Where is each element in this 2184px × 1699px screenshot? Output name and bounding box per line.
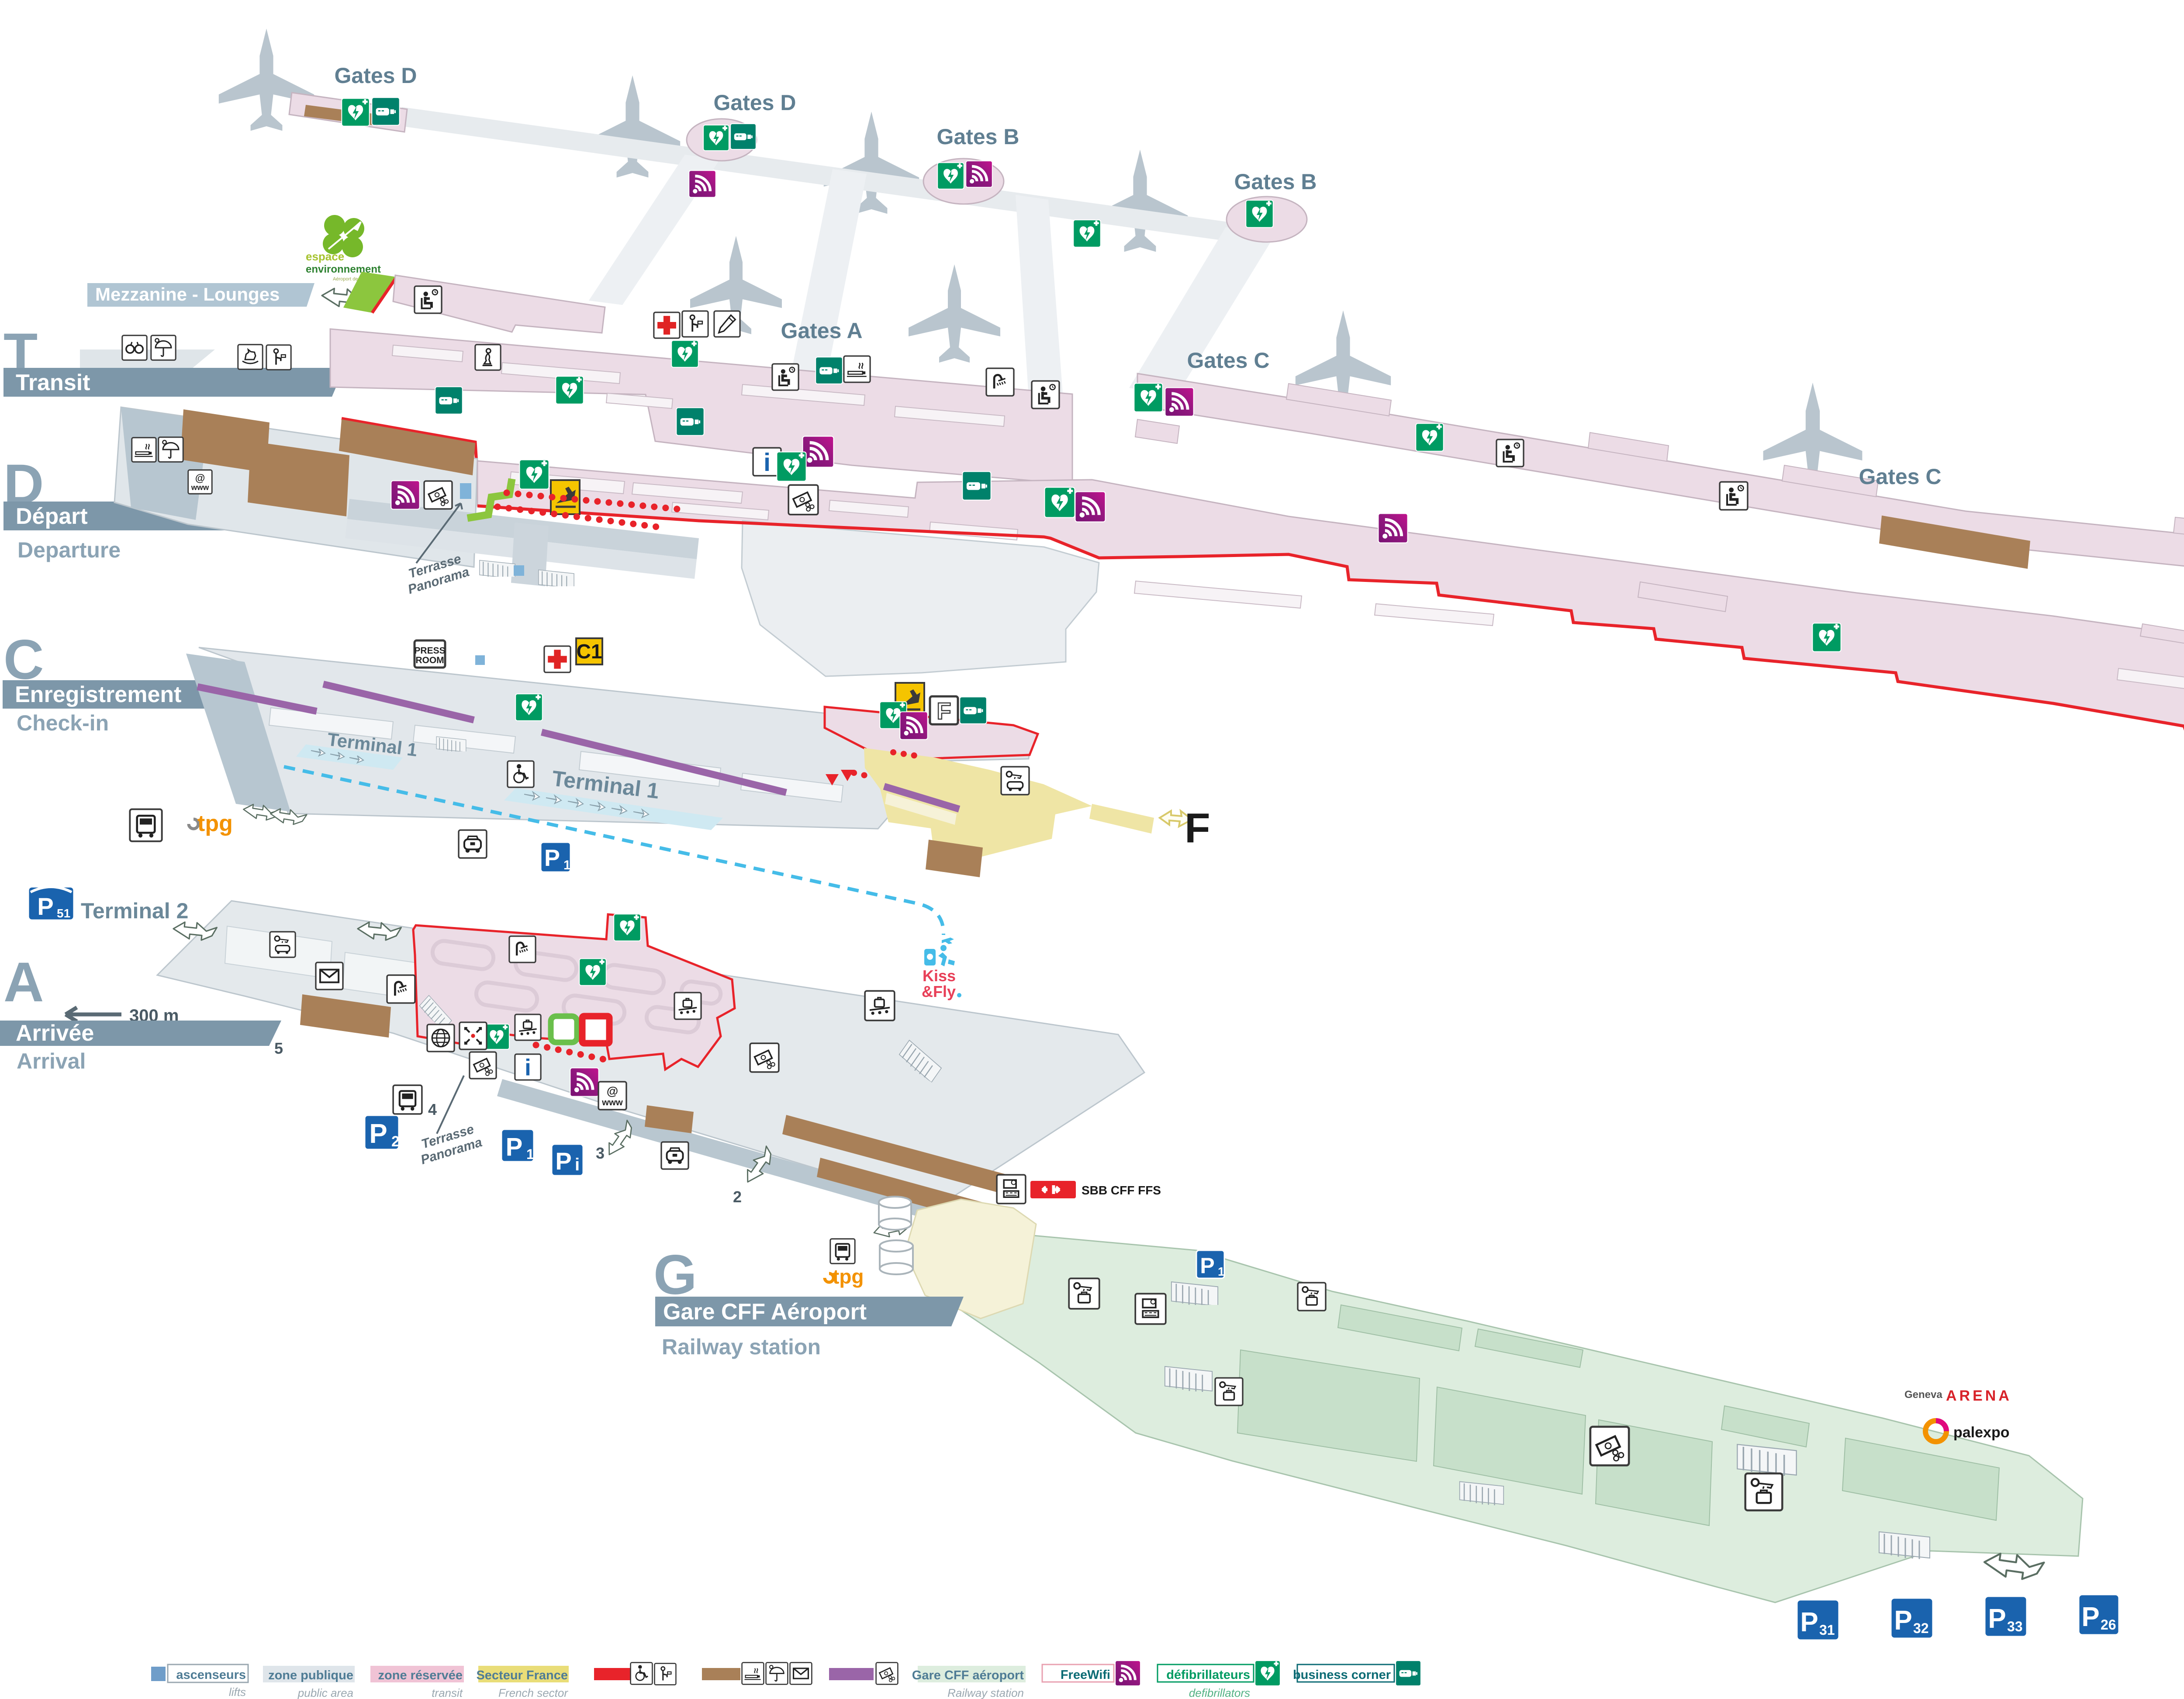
svg-text:&Fly: &Fly <box>922 983 956 1000</box>
svg-text:lifts: lifts <box>229 1685 246 1699</box>
svg-text:C1: C1 <box>577 640 602 663</box>
svg-text:i: i <box>575 1155 580 1174</box>
svg-text:défibrillateurs: défibrillateurs <box>1166 1668 1250 1682</box>
svg-text:Arrivée: Arrivée <box>16 1021 94 1046</box>
svg-text:P: P <box>1800 1607 1818 1637</box>
svg-text:P: P <box>1200 1253 1214 1278</box>
svg-text:Gates D: Gates D <box>714 90 796 115</box>
svg-text:transit: transit <box>432 1686 463 1699</box>
svg-text:P: P <box>555 1147 571 1175</box>
svg-text:French sector: French sector <box>498 1686 568 1699</box>
svg-text:P: P <box>544 845 560 871</box>
svg-text:Gates C: Gates C <box>1187 348 1270 373</box>
svg-text:ARENA: ARENA <box>1946 1388 2012 1404</box>
svg-text:A: A <box>3 951 44 1014</box>
svg-text:33: 33 <box>2007 1619 2023 1634</box>
svg-text:1: 1 <box>526 1146 534 1162</box>
svg-text:2: 2 <box>391 1133 400 1150</box>
svg-text:ascenseurs: ascenseurs <box>176 1668 246 1682</box>
svg-text:3: 3 <box>596 1144 605 1162</box>
svg-text:Terminal 2: Terminal 2 <box>81 899 188 923</box>
svg-text:Transit: Transit <box>16 370 90 395</box>
svg-text:P: P <box>37 893 53 920</box>
svg-text:1: 1 <box>563 858 571 872</box>
svg-text:Gates C: Gates C <box>1859 464 1942 489</box>
svg-text:palexpo: palexpo <box>1953 1424 2009 1441</box>
svg-text:FreeWifi: FreeWifi <box>1061 1668 1110 1682</box>
svg-text:espace: espace <box>306 250 344 263</box>
svg-text:P: P <box>1988 1604 2006 1634</box>
svg-text:PRESS: PRESS <box>414 646 445 656</box>
svg-text:P: P <box>506 1133 523 1161</box>
svg-text:Check-in: Check-in <box>17 711 109 735</box>
svg-text:31: 31 <box>1819 1622 1835 1638</box>
svg-text:1: 1 <box>1218 1265 1225 1278</box>
svg-text:Gates D: Gates D <box>335 63 417 88</box>
svg-text:F: F <box>1185 805 1210 851</box>
svg-text:P: P <box>2081 1602 2099 1632</box>
svg-text:Railway station: Railway station <box>662 1335 821 1359</box>
svg-text:Geneva: Geneva <box>1904 1389 1942 1401</box>
svg-text:P: P <box>1894 1606 1912 1636</box>
svg-text:P: P <box>369 1119 387 1149</box>
svg-text:26: 26 <box>2101 1617 2116 1633</box>
svg-text:Enregistrement: Enregistrement <box>15 682 181 707</box>
svg-text:SBB CFF FFS: SBB CFF FFS <box>1082 1183 1161 1197</box>
svg-text:5: 5 <box>274 1039 283 1057</box>
svg-text:Gare CFF aéroport: Gare CFF aéroport <box>912 1668 1024 1682</box>
svg-text:51: 51 <box>57 907 70 920</box>
svg-text:ROOM: ROOM <box>415 655 444 665</box>
svg-text:zone publique: zone publique <box>268 1668 353 1682</box>
svg-text:F: F <box>937 698 951 724</box>
svg-text:zone réservée: zone réservée <box>378 1668 463 1682</box>
svg-text:Gates B: Gates B <box>937 125 1019 149</box>
svg-text:2: 2 <box>733 1188 742 1206</box>
svg-text:Departure: Departure <box>17 538 121 562</box>
svg-text:defibrillators: defibrillators <box>1189 1686 1250 1699</box>
svg-text:Railway station: Railway station <box>947 1686 1024 1699</box>
svg-text:Secteur France: Secteur France <box>476 1668 568 1682</box>
svg-text:public area: public area <box>297 1686 353 1699</box>
svg-text:4: 4 <box>428 1100 437 1118</box>
svg-text:tpg: tpg <box>197 811 233 836</box>
svg-text:Gates A: Gates A <box>781 318 862 343</box>
svg-text:Départ: Départ <box>16 504 88 529</box>
svg-text:business corner: business corner <box>1293 1668 1391 1682</box>
svg-text:tpg: tpg <box>833 1265 864 1288</box>
svg-text:Gare CFF Aéroport: Gare CFF Aéroport <box>663 1299 867 1325</box>
svg-text:Kiss: Kiss <box>923 967 956 985</box>
svg-text:Mezzanine - Lounges: Mezzanine - Lounges <box>95 284 280 305</box>
svg-text:32: 32 <box>1913 1620 1929 1636</box>
svg-text:Gates B: Gates B <box>1234 170 1317 194</box>
svg-text:Arrival: Arrival <box>17 1049 86 1073</box>
